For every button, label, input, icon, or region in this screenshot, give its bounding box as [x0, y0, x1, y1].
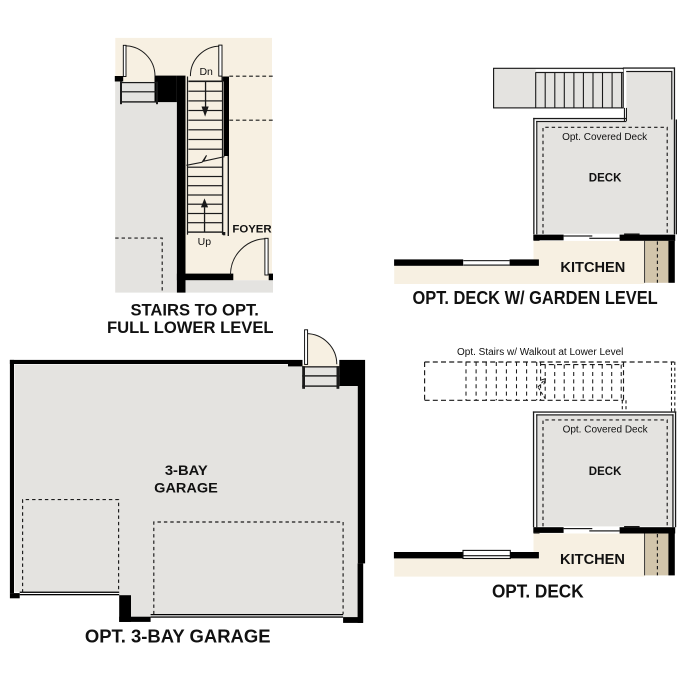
svg-text:DECK: DECK	[589, 464, 622, 478]
svg-text:OPT. DECK: OPT. DECK	[492, 581, 584, 601]
svg-text:GARAGE: GARAGE	[154, 481, 218, 497]
svg-text:FOYER: FOYER	[232, 224, 271, 236]
svg-text:3-BAY: 3-BAY	[165, 463, 208, 479]
svg-text:Up: Up	[198, 236, 212, 248]
svg-text:DECK: DECK	[589, 170, 622, 184]
svg-text:OPT. DECK W/ GARDEN LEVEL: OPT. DECK W/ GARDEN LEVEL	[413, 288, 658, 308]
svg-text:Opt. Covered Deck: Opt. Covered Deck	[563, 425, 649, 436]
svg-text:Opt. Stairs w/ Walkout at Lowe: Opt. Stairs w/ Walkout at Lower Level	[457, 347, 623, 358]
svg-text:Opt. Covered Deck: Opt. Covered Deck	[562, 132, 648, 143]
svg-text:KITCHEN: KITCHEN	[560, 260, 625, 276]
svg-text:Dn: Dn	[199, 66, 213, 78]
svg-text:FULL LOWER LEVEL: FULL LOWER LEVEL	[107, 318, 274, 337]
svg-text:OPT. 3-BAY GARAGE: OPT. 3-BAY GARAGE	[85, 626, 271, 646]
svg-text:KITCHEN: KITCHEN	[560, 552, 625, 568]
svg-text:STAIRS TO OPT.: STAIRS TO OPT.	[130, 301, 258, 320]
